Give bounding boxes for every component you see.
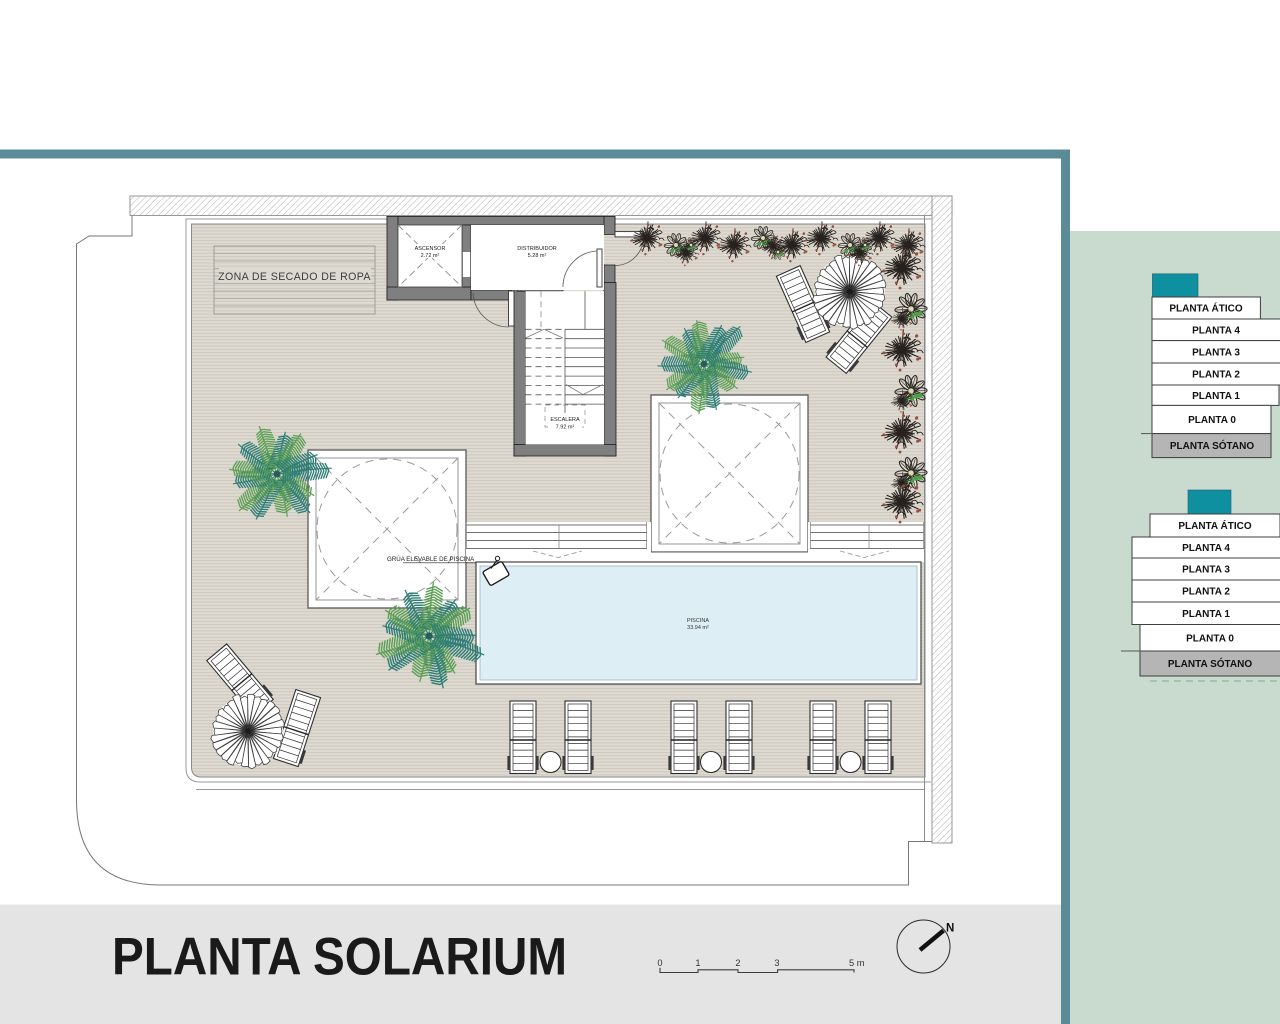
svg-text:PLANTA 2: PLANTA 2 — [1182, 587, 1230, 598]
svg-text:PLANTA 3: PLANTA 3 — [1182, 565, 1230, 576]
svg-text:PLANTA SOLARIUM: PLANTA SOLARIUM — [112, 928, 567, 987]
svg-text:PLANTA SÓTANO: PLANTA SÓTANO — [1168, 657, 1252, 670]
svg-text:PLANTA 0: PLANTA 0 — [1188, 415, 1236, 426]
svg-text:PLANTA 4: PLANTA 4 — [1182, 543, 1230, 554]
svg-text:5.28 m²: 5.28 m² — [528, 253, 547, 259]
svg-text:ESCALERA: ESCALERA — [550, 417, 580, 423]
svg-text:PLANTA 4: PLANTA 4 — [1192, 325, 1240, 336]
svg-text:ZONA DE SECADO DE ROPA: ZONA DE SECADO DE ROPA — [218, 271, 371, 283]
svg-text:2: 2 — [735, 958, 740, 968]
svg-text:GRÚA ELEVABLE DE PISCINA: GRÚA ELEVABLE DE PISCINA — [387, 556, 475, 563]
svg-text:PLANTA 2: PLANTA 2 — [1192, 370, 1240, 381]
svg-text:2.72 m²: 2.72 m² — [421, 253, 440, 259]
svg-text:33.94 m²: 33.94 m² — [687, 625, 709, 631]
svg-text:PLANTA ÁTICO: PLANTA ÁTICO — [1178, 519, 1252, 532]
svg-text:PLANTA 1: PLANTA 1 — [1182, 609, 1230, 620]
svg-text:1: 1 — [695, 958, 700, 968]
svg-text:3: 3 — [774, 958, 779, 968]
svg-text:PISCINA: PISCINA — [687, 618, 709, 624]
svg-text:N: N — [946, 923, 954, 935]
svg-text:PLANTA 3: PLANTA 3 — [1192, 347, 1240, 358]
svg-text:ASCENSOR: ASCENSOR — [415, 246, 446, 252]
svg-text:7.92 m²: 7.92 m² — [556, 425, 575, 431]
svg-text:PLANTA 1: PLANTA 1 — [1192, 391, 1240, 402]
svg-text:PLANTA ÁTICO: PLANTA ÁTICO — [1169, 302, 1243, 315]
svg-text:0: 0 — [657, 958, 662, 968]
svg-text:PLANTA 0: PLANTA 0 — [1186, 633, 1234, 644]
svg-text:PLANTA SÓTANO: PLANTA SÓTANO — [1170, 439, 1254, 452]
svg-text:5 m: 5 m — [849, 958, 865, 968]
svg-text:DISTRIBUIDOR: DISTRIBUIDOR — [517, 246, 556, 252]
